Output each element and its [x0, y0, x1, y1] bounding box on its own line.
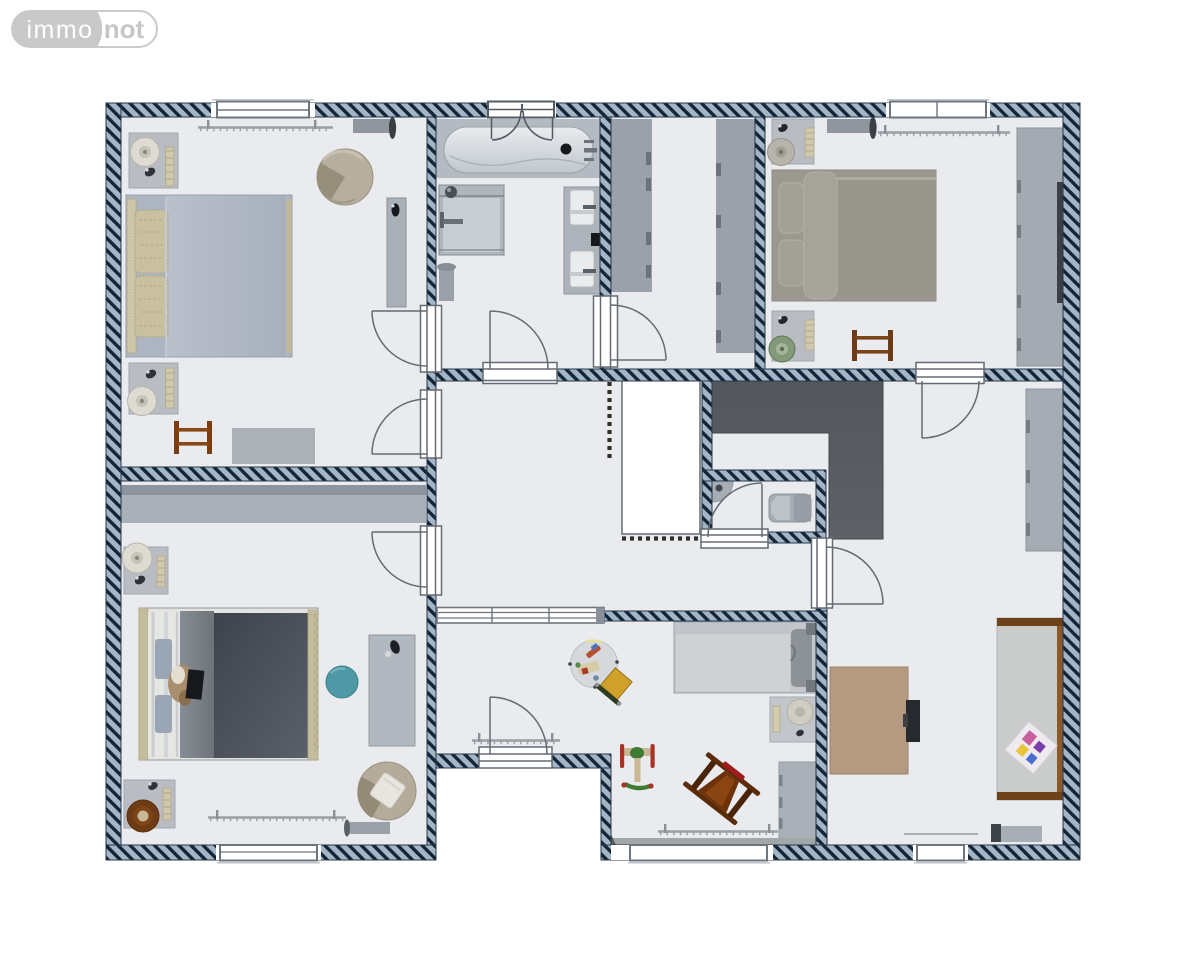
- svg-text:immo: immo: [26, 16, 93, 44]
- svg-text:not: not: [104, 14, 145, 44]
